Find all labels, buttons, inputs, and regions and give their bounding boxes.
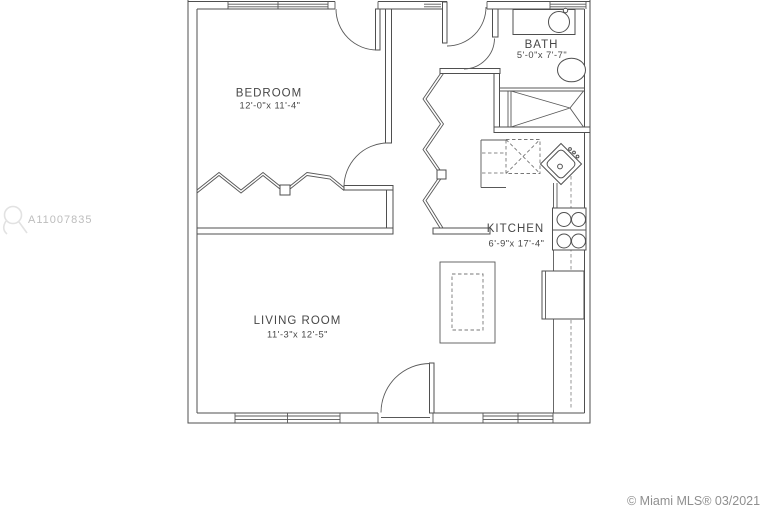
stove (553, 208, 587, 250)
door-front-entry (381, 363, 434, 413)
refrigerator (542, 271, 584, 319)
door-bedroom-exterior (336, 9, 380, 50)
kitchen-corner-cabinet (506, 140, 540, 174)
bedroom-label: BEDROOM (236, 88, 302, 100)
windows (228, 2, 586, 424)
door-bedroom (344, 143, 393, 190)
bathtub-shower (500, 88, 585, 127)
copyright-text: © Miami MLS® 03/2021 (627, 494, 760, 508)
hall-closet-accordion-doors (423, 74, 446, 229)
kitchen-corner-sink (541, 144, 582, 185)
floorplan-drawing: BEDROOM 12'-0"x 11'-4" BATH 5'-0"x 7'-7"… (0, 0, 782, 514)
kitchen-island (440, 262, 495, 343)
living-room-label: LIVING ROOM (254, 315, 342, 327)
bedroom-closet-accordion-doors (197, 173, 344, 196)
toilet (558, 58, 586, 82)
door-bath (464, 39, 495, 70)
kitchen-label: KITCHEN (487, 223, 544, 235)
kitchen-dimensions: 6'-9"x 17'-4" (489, 239, 545, 249)
door-hall-entry (443, 2, 487, 46)
living-room-dimensions: 11'-3"x 12'-5" (267, 330, 328, 340)
bedroom-dimensions: 12'-0"x 11'-4" (240, 101, 301, 111)
bathroom-sink (513, 8, 575, 34)
screenshot-root: { "colors": { "background": "#ffffff", "… (0, 0, 782, 514)
bath-dimensions: 5'-0"x 7'-7" (517, 50, 567, 60)
